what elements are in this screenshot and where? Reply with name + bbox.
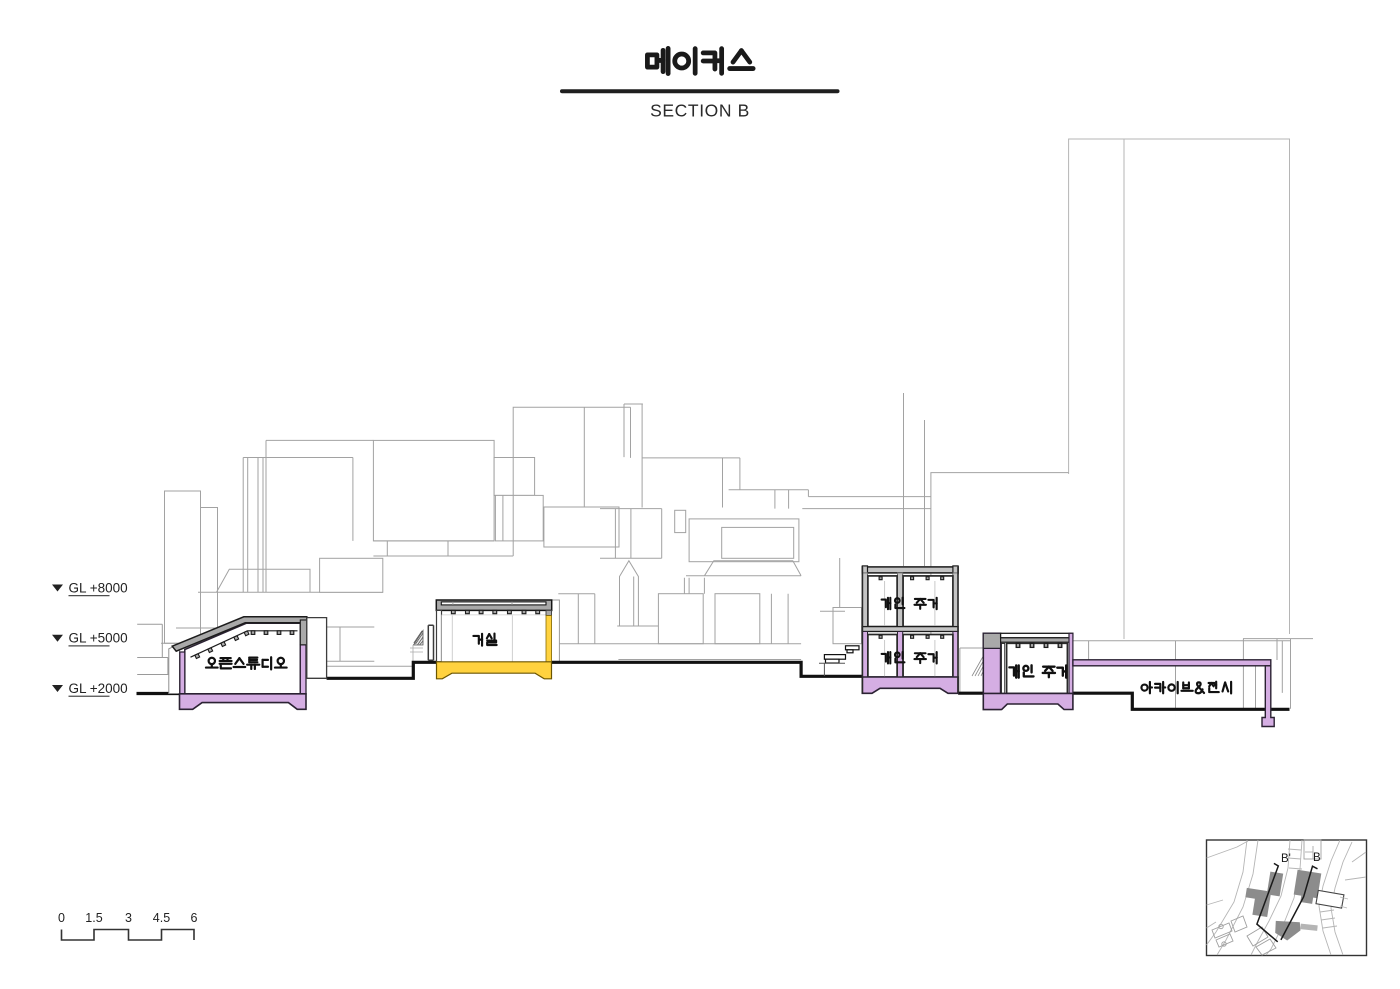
svg-text:3: 3 — [125, 911, 132, 925]
svg-text:B: B — [1313, 852, 1321, 864]
svg-text:GL +8000: GL +8000 — [69, 580, 128, 595]
svg-text:SECTION B: SECTION B — [650, 101, 750, 121]
svg-text:6: 6 — [191, 911, 198, 925]
svg-text:0: 0 — [58, 911, 65, 925]
svg-text:1.5: 1.5 — [85, 911, 102, 925]
svg-text:4.5: 4.5 — [153, 911, 170, 925]
svg-text:B': B' — [1281, 853, 1291, 865]
svg-text:GL +2000: GL +2000 — [69, 681, 128, 696]
svg-text:GL +5000: GL +5000 — [69, 631, 128, 646]
